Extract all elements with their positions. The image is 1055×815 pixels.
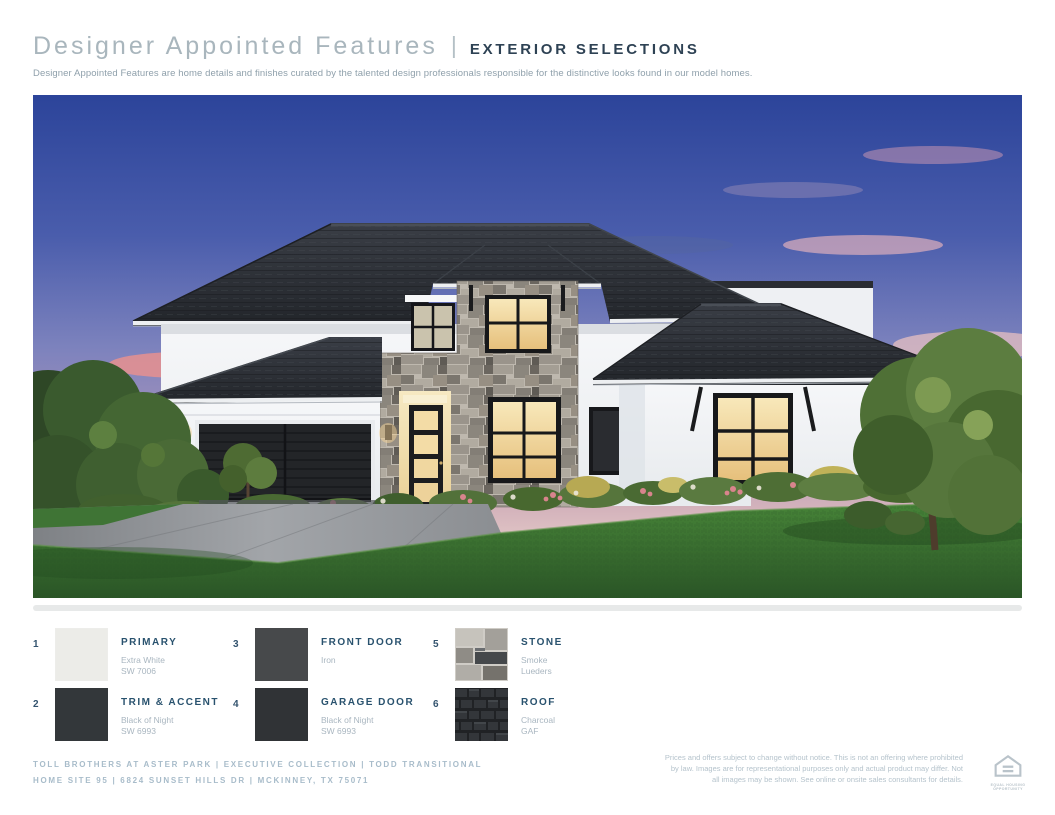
legend-number: 6 — [433, 688, 455, 741]
legend-item-roof: 6 ROOF — [433, 688, 633, 741]
legend-item-garage-door: 4 GARAGE DOOR Black of Night SW 6993 — [233, 688, 433, 741]
title-row: Designer Appointed Features | EXTERIOR S… — [33, 32, 1022, 61]
legend-detail-line: Black of Night — [121, 715, 219, 726]
legend-detail-line: Smoke — [521, 655, 563, 666]
legend-number: 3 — [233, 628, 255, 681]
stone-texture-swatch — [455, 628, 508, 681]
legend-detail-line: Lueders — [521, 666, 563, 677]
community-info: TOLL BROTHERS AT ASTER PARK | EXECUTIVE … — [33, 757, 482, 789]
equal-housing-logo: EQUAL HOUSING OPPORTUNITY — [989, 754, 1027, 791]
legend-number: 4 — [233, 688, 255, 741]
legend-item-stone: 5 STONE Smoke Lueders — [433, 628, 633, 681]
section-title: EXTERIOR SELECTIONS — [470, 41, 700, 58]
primary-color-swatch — [55, 628, 108, 681]
garage-door-color-swatch — [255, 688, 308, 741]
legend-detail-line: GAF — [521, 726, 556, 737]
legend-detail-line: Charcoal — [521, 715, 556, 726]
header-description: Designer Appointed Features are home det… — [33, 68, 1022, 79]
legend-item-trim: 2 TRIM & ACCENT Black of Night SW 6993 — [33, 688, 233, 741]
legend-label: TRIM & ACCENT — [121, 697, 219, 708]
legend-detail-line: SW 7006 — [121, 666, 177, 677]
legend-number: 2 — [33, 688, 55, 741]
house-photo — [33, 95, 1022, 598]
trim-color-swatch — [55, 688, 108, 741]
legend-label: PRIMARY — [121, 637, 177, 648]
legend-number: 1 — [33, 628, 55, 681]
equal-housing-house-icon — [993, 754, 1023, 778]
legend-detail-line: Extra White — [121, 655, 177, 666]
community-line-2: HOME SITE 95 | 6824 SUNSET HILLS DR | MC… — [33, 773, 482, 789]
roof-texture-swatch — [455, 688, 508, 741]
legend-column-3: 5 STONE Smoke Lueders — [433, 628, 633, 748]
equal-housing-text: EQUAL HOUSING OPPORTUNITY — [989, 783, 1027, 791]
legend-label: FRONT DOOR — [321, 637, 403, 648]
legend-item-front-door: 3 FRONT DOOR Iron — [233, 628, 433, 681]
legend-detail-line: Iron — [321, 655, 403, 666]
front-door-color-swatch — [255, 628, 308, 681]
legend-detail-line: SW 6993 — [321, 726, 414, 737]
legend-number: 5 — [433, 628, 455, 681]
legend-item-primary: 1 PRIMARY Extra White SW 7006 — [33, 628, 233, 681]
legend-detail-line: SW 6993 — [121, 726, 219, 737]
section-divider — [33, 605, 1022, 611]
legend-label: ROOF — [521, 697, 556, 708]
house-photo-illustration — [33, 95, 1022, 598]
legend-column-2: 3 FRONT DOOR Iron 4 GARAGE DOOR Black of… — [233, 628, 433, 748]
front-door — [399, 391, 451, 509]
legend-label: STONE — [521, 637, 563, 648]
legal-disclaimer: Prices and offers subject to change with… — [663, 752, 963, 785]
selections-legend: 1 PRIMARY Extra White SW 7006 2 TRIM & A… — [33, 628, 633, 748]
title-divider: | — [451, 32, 457, 59]
legend-detail-line: Black of Night — [321, 715, 414, 726]
page-title: Designer Appointed Features — [33, 32, 438, 61]
community-line-1: TOLL BROTHERS AT ASTER PARK | EXECUTIVE … — [33, 757, 482, 773]
header: Designer Appointed Features | EXTERIOR S… — [33, 32, 1022, 79]
legend-column-1: 1 PRIMARY Extra White SW 7006 2 TRIM & A… — [33, 628, 233, 748]
legend-label: GARAGE DOOR — [321, 697, 414, 708]
